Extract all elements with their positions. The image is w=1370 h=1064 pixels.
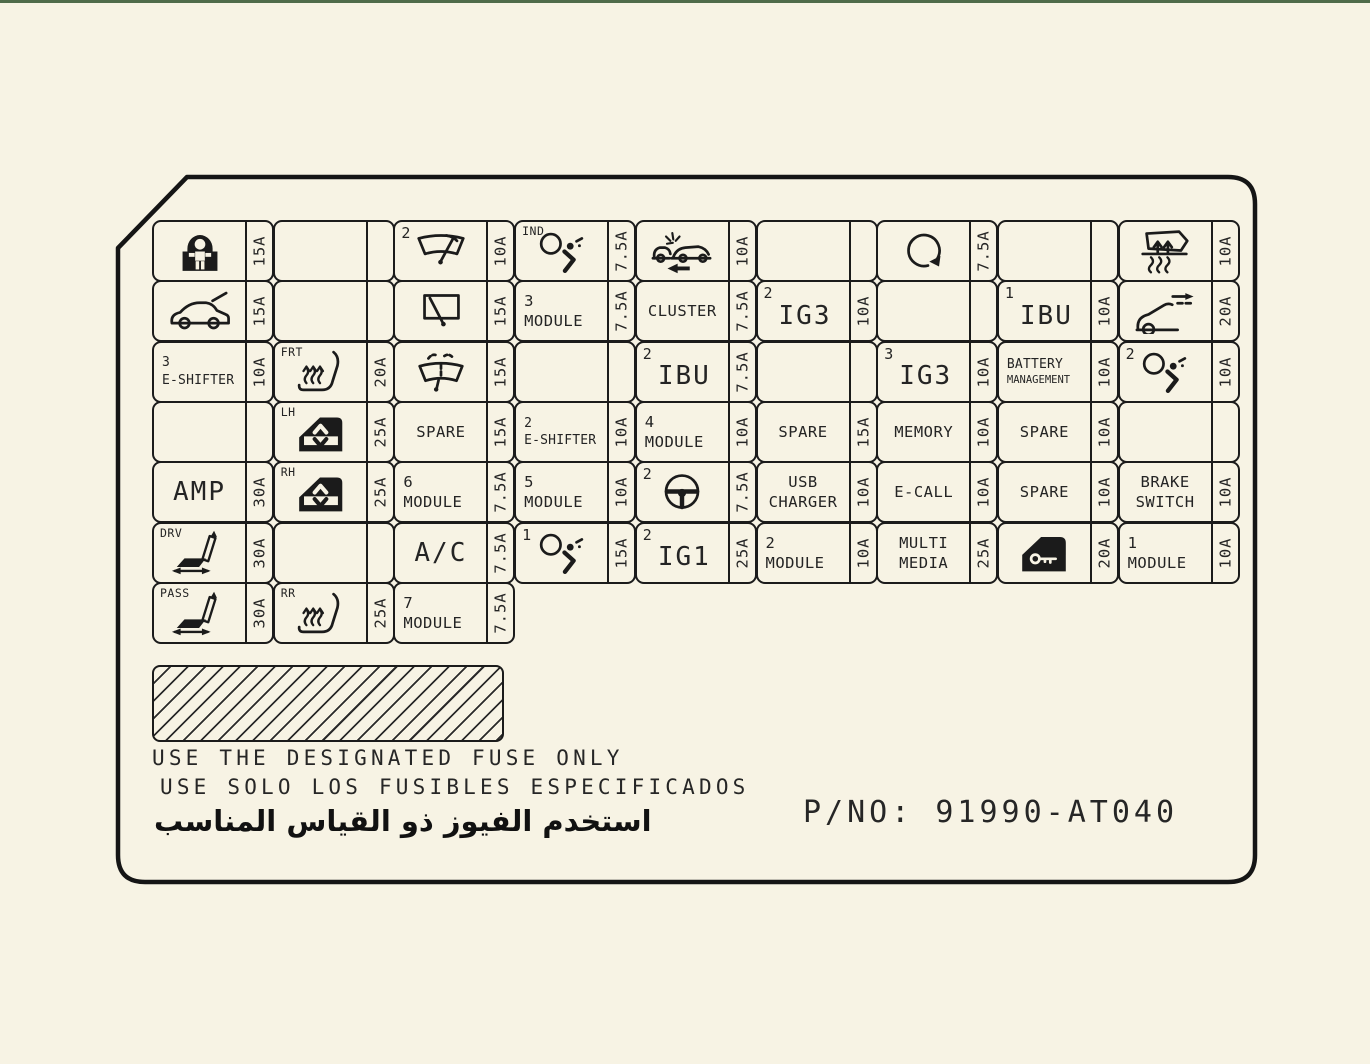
fuse-cell-label-area: 2IBU — [637, 343, 728, 401]
fuse-label-lines: 3E-SHIFTER — [154, 354, 245, 389]
fuse-cell-label-area: SPARE — [999, 463, 1090, 521]
fuse-cell-label-area — [516, 343, 607, 401]
fuse-cell-label-area: BATTERYMANAGEMENT — [999, 343, 1090, 401]
fuse-amp-rating: 10A — [969, 463, 996, 521]
fuse-cell-child-seat: 15A — [152, 220, 274, 282]
fuse-label-line: MEMORY — [894, 422, 953, 442]
fuse-label-line: IG3 — [779, 301, 832, 331]
fuse-amp-text: 10A — [1095, 417, 1113, 448]
fuse-amp-text: 30A — [251, 537, 269, 568]
fuse-label-line: 4 — [645, 412, 655, 432]
fuse-amp-rating: 20A — [1211, 282, 1238, 340]
fuse-amp-rating: 25A — [366, 463, 393, 521]
fuse-label-line: SPARE — [778, 422, 827, 442]
fuse-amp-text: 15A — [854, 417, 872, 448]
fuse-cell-collision: 10A — [635, 220, 757, 282]
fuse-cell-e-shifter-3: 3E-SHIFTER10A — [152, 341, 274, 403]
fuse-cell-label-area — [275, 524, 366, 582]
fuse-amp-text: 10A — [1095, 477, 1113, 508]
fuse-amp-text: 10A — [613, 477, 631, 508]
fuse-amp-rating: 15A — [607, 524, 634, 582]
fuse-label-line: 2 — [766, 533, 776, 553]
fuse-amp-rating — [1211, 403, 1238, 461]
fuse-amp-text: 15A — [492, 417, 510, 448]
fuse-cell-memory: MEMORY10A — [876, 401, 998, 463]
fuse-cell-label-area: 2 — [1120, 343, 1211, 401]
fuse-label-lines: USBCHARGER — [758, 472, 849, 512]
fuse-cell-label-area: SPARE — [999, 403, 1090, 461]
fuse-label-lines: 3MODULE — [516, 291, 607, 331]
fuse-amp-rating: 30A — [245, 524, 272, 582]
hatched-legend-box — [152, 665, 504, 742]
fuse-label-lines: 1MODULE — [1120, 533, 1211, 573]
fuse-cell-ac: A/C7.5A — [393, 522, 515, 584]
fuse-label-lines: AMP — [154, 477, 245, 507]
fuse-amp-rating: 10A — [849, 524, 876, 582]
fuse-cell-module-7: 7MODULE7.5A — [393, 582, 515, 644]
fuse-label-lines: MULTIMEDIA — [878, 533, 969, 573]
fuse-prefix-label: 2 — [764, 284, 774, 302]
child-seat-icon — [169, 229, 231, 274]
fuse-cell-usb-charger: USBCHARGER10A — [756, 461, 878, 523]
fuse-cell-window-rh: RH 25A — [273, 461, 395, 523]
fuse-label-lines: SPARE — [395, 422, 486, 442]
fuse-amp-text: 30A — [251, 477, 269, 508]
fuse-amp-text: 10A — [1216, 356, 1234, 387]
fuse-amp-rating: 20A — [1090, 524, 1117, 582]
fuse-cell-label-area: E-CALL — [878, 463, 969, 521]
fuse-amp-text: 10A — [1095, 296, 1113, 327]
fuse-amp-rating: 10A — [1090, 403, 1117, 461]
fuse-cell-spare-1: SPARE15A — [393, 401, 515, 463]
fuse-cell-heated-seat-front: FRT 20A — [273, 341, 395, 403]
fuse-cell-spare-3: SPARE10A — [997, 401, 1119, 463]
fuse-label-line: 5 — [524, 472, 534, 492]
fuse-label-line: MEDIA — [899, 553, 948, 573]
fuse-prefix-label: 1 — [1005, 284, 1015, 302]
fuse-amp-rating: 10A — [1090, 282, 1117, 340]
fuse-prefix-label: 3 — [884, 345, 894, 363]
fuse-cell-power-seat-passenger: PASS 30A — [152, 582, 274, 644]
fuse-cell-module-5: 5MODULE10A — [514, 461, 636, 523]
fuse-cell-label-area — [395, 343, 486, 401]
fuse-cell-power-seat-driver: DRV 30A — [152, 522, 274, 584]
fuse-label-lines: BATTERYMANAGEMENT — [999, 356, 1090, 388]
fuse-cell-label-area: RH — [275, 463, 366, 521]
fuse-amp-rating: 7.5A — [607, 282, 634, 340]
fuse-prefix-label: RR — [281, 586, 296, 600]
fuse-amp-rating: 10A — [969, 343, 996, 401]
fuse-cell-label-area: 2 — [637, 463, 728, 521]
fuse-amp-rating: 10A — [1211, 222, 1238, 280]
fuse-label-lines: 7MODULE — [395, 593, 486, 633]
fuse-amp-rating — [969, 282, 996, 340]
fuse-amp-rating: 10A — [1211, 343, 1238, 401]
fuse-amp-text: 25A — [975, 537, 993, 568]
fuse-label-line: SPARE — [1020, 482, 1069, 502]
fuse-amp-rating — [366, 222, 393, 280]
fuse-label-lines: 2E-SHIFTER — [516, 415, 607, 450]
fuse-amp-rating: 7.5A — [486, 584, 513, 642]
fuse-prefix-label: DRV — [160, 526, 182, 540]
fuse-cell-empty — [756, 220, 878, 282]
fuse-amp-text: 15A — [613, 537, 631, 568]
fuse-cell-window-lh: LH 25A — [273, 401, 395, 463]
fuse-cell-empty — [152, 401, 274, 463]
fuse-amp-rating: 7.5A — [969, 222, 996, 280]
fuse-cell-module-1: 1MODULE10A — [1118, 522, 1240, 584]
fuse-cell-label-area: USBCHARGER — [758, 463, 849, 521]
fuse-cell-label-area: 1IBU — [999, 282, 1090, 340]
fuse-label-lines: SPARE — [999, 422, 1090, 442]
fuse-amp-rating: 10A — [607, 403, 634, 461]
fuse-cell-label-area — [154, 403, 245, 461]
fuse-label-line: MODULE — [524, 492, 583, 512]
fuse-label-line: SWITCH — [1136, 492, 1195, 512]
fuse-cell-label-area — [999, 222, 1090, 280]
fuse-amp-rating — [366, 524, 393, 582]
fuse-label-lines: 5MODULE — [516, 472, 607, 512]
fuse-cell-label-area: IND — [516, 222, 607, 280]
fuse-label-line: SPARE — [416, 422, 465, 442]
fuse-cell-e-shifter-2: 2E-SHIFTER10A — [514, 401, 636, 463]
fuse-label-lines: BRAKESWITCH — [1120, 472, 1211, 512]
fuse-amp-text: 25A — [371, 417, 389, 448]
fuse-label-line: IBU — [1020, 301, 1073, 331]
fuse-cell-heated-mirror: 10A — [1118, 220, 1240, 282]
fuse-amp-rating — [245, 403, 272, 461]
fuse-prefix-label: 2 — [643, 345, 653, 363]
fuse-prefix-label: LH — [281, 405, 296, 419]
fuse-amp-rating: 7.5A — [486, 463, 513, 521]
fuse-amp-text: 7.5A — [733, 291, 751, 332]
fuse-cell-label-area: A/C — [395, 524, 486, 582]
fuse-amp-rating: 10A — [486, 222, 513, 280]
fuse-prefix-label: RH — [281, 465, 296, 479]
fuse-amp-rating: 7.5A — [607, 222, 634, 280]
fuse-amp-rating: 25A — [969, 524, 996, 582]
fuse-amp-text: 10A — [1216, 477, 1234, 508]
fuse-amp-rating: 10A — [728, 222, 755, 280]
fuse-cell-label-area — [1120, 403, 1211, 461]
fuse-prefix-label: 2 — [401, 224, 411, 242]
fuse-amp-rating: 7.5A — [728, 282, 755, 340]
fuse-amp-text: 7.5A — [613, 230, 631, 271]
fuse-amp-text: 10A — [854, 477, 872, 508]
fuse-prefix-label: 2 — [643, 526, 653, 544]
fuse-cell-empty — [514, 341, 636, 403]
fuse-cell-label-area: 2MODULE — [758, 524, 849, 582]
fuse-label-line: AMP — [173, 477, 226, 507]
fuse-cell-label-area: 7MODULE — [395, 584, 486, 642]
fuse-label-line: BRAKE — [1141, 472, 1190, 492]
fuse-cell-label-area: 1MODULE — [1120, 524, 1211, 582]
fuse-cell-label-area — [878, 282, 969, 340]
fuse-cell-rear-wiper: 15A — [393, 280, 515, 342]
fuse-amp-text: 10A — [492, 236, 510, 267]
fuse-cell-label-area: DRV — [154, 524, 245, 582]
fuse-amp-rating: 7.5A — [486, 524, 513, 582]
fuse-amp-text: 10A — [613, 417, 631, 448]
fuse-label-lines: SPARE — [758, 422, 849, 442]
fuse-cell-label-area: 3IG3 — [878, 343, 969, 401]
fuse-label-line: MANAGEMENT — [1007, 373, 1070, 387]
fuse-amp-rating: 10A — [969, 403, 996, 461]
notice-arabic: استخدم الفيوز ذو القياس المناسب — [154, 804, 652, 838]
fuse-amp-rating: 10A — [1211, 524, 1238, 582]
fuse-cell-heated-seat-rear: RR 25A — [273, 582, 395, 644]
fuse-amp-rating: 10A — [728, 403, 755, 461]
fuse-cell-label-area: 4MODULE — [637, 403, 728, 461]
fuse-cell-amp: AMP30A — [152, 461, 274, 523]
fuse-label-line: IG1 — [658, 542, 711, 572]
fuse-label-line: MODULE — [524, 311, 583, 331]
fuse-amp-rating: 10A — [849, 282, 876, 340]
fuse-prefix-label: 1 — [522, 526, 532, 544]
fuse-cell-label-area: 6MODULE — [395, 463, 486, 521]
fuse-amp-text: 20A — [1095, 537, 1113, 568]
fuse-prefix-label: 2 — [1126, 345, 1136, 363]
fuse-label-line: MODULE — [403, 492, 462, 512]
fuse-amp-rating: 10A — [1211, 463, 1238, 521]
fuse-cell-label-area: LH — [275, 403, 366, 461]
fuse-cell-module-3: 3MODULE7.5A — [514, 280, 636, 342]
fuse-label-line: 3 — [524, 291, 534, 311]
fuse-cell-label-area — [275, 222, 366, 280]
fuse-amp-rating: 15A — [849, 403, 876, 461]
crash-car-icon — [651, 229, 713, 274]
fuse-cell-empty — [756, 341, 878, 403]
fuse-cell-module-6: 6MODULE7.5A — [393, 461, 515, 523]
fuse-cell-tailgate: 15A — [152, 280, 274, 342]
fuse-cell-battery-management: BATTERYMANAGEMENT10A — [997, 341, 1119, 403]
fuse-amp-rating: 15A — [245, 282, 272, 340]
fuse-label-line: E-SHIFTER — [162, 372, 234, 390]
fuse-amp-rating: 25A — [366, 403, 393, 461]
window-icon — [289, 410, 351, 455]
fuse-cell-label-area: SPARE — [758, 403, 849, 461]
fuse-label-line: MULTI — [899, 533, 948, 553]
fuse-cell-empty — [1118, 401, 1240, 463]
fuse-prefix-label: FRT — [281, 345, 303, 359]
fuse-amp-rating: 20A — [366, 343, 393, 401]
fuse-cell-label-area — [758, 343, 849, 401]
fuse-label-line: E-SHIFTER — [524, 432, 596, 450]
fuse-cell-label-area — [878, 222, 969, 280]
fuse-amp-text: 7.5A — [733, 351, 751, 392]
fuse-amp-text: 7.5A — [492, 592, 510, 633]
fuse-amp-text: 25A — [371, 598, 389, 629]
fuse-amp-rating: 10A — [245, 343, 272, 401]
door-key-icon — [1013, 530, 1075, 575]
fuse-amp-text: 15A — [492, 356, 510, 387]
fuse-cell-label-area: PASS — [154, 584, 245, 642]
fuse-cell-label-area — [154, 282, 245, 340]
fuse-label-lines: 4MODULE — [637, 412, 728, 452]
fuse-cell-label-area: 3MODULE — [516, 282, 607, 340]
fuse-cell-ibu-2: 2IBU7.5A — [635, 341, 757, 403]
fuse-cell-empty — [997, 220, 1119, 282]
fuse-amp-text: 10A — [1216, 537, 1234, 568]
fuse-amp-rating: 15A — [486, 403, 513, 461]
part-number: P/NO: 91990-AT040 — [803, 795, 1178, 830]
fuse-label-line: BATTERY — [1007, 356, 1063, 374]
fuse-cell-ig3-3: 3IG310A — [876, 341, 998, 403]
fuse-cell-label-area: MULTIMEDIA — [878, 524, 969, 582]
fuse-cell-airbag-indicator: IND 7.5A — [514, 220, 636, 282]
fuse-amp-text: 7.5A — [492, 472, 510, 513]
fuse-label-line: USB — [788, 472, 818, 492]
fuse-cell-power-trunk: 20A — [1118, 280, 1240, 342]
fuse-cell-label-area — [275, 282, 366, 340]
fuse-cell-empty — [273, 522, 395, 584]
fuse-cell-label-area: 2IG3 — [758, 282, 849, 340]
fuse-cell-label-area — [395, 282, 486, 340]
fuse-cell-label-area: 1 — [516, 524, 607, 582]
fuse-cell-heated-steering: 7.5A — [876, 220, 998, 282]
fuse-amp-text: 25A — [733, 537, 751, 568]
fuse-amp-rating — [607, 343, 634, 401]
notice-english: USE THE DESIGNATED FUSE ONLY — [152, 746, 624, 770]
fuse-amp-text: 7.5A — [975, 230, 993, 271]
fuse-amp-text: 7.5A — [733, 472, 751, 513]
fuse-amp-text: 7.5A — [492, 532, 510, 573]
fuse-amp-rating: 25A — [728, 524, 755, 582]
fuse-cell-empty — [273, 280, 395, 342]
fuse-cell-module-4: 4MODULE10A — [635, 401, 757, 463]
fuse-amp-text: 10A — [975, 356, 993, 387]
fuse-cell-module-2: 2MODULE10A — [756, 522, 878, 584]
fuse-cell-label-area: CLUSTER — [637, 282, 728, 340]
fuse-amp-rating: 10A — [607, 463, 634, 521]
power-trunk-icon — [1134, 289, 1196, 334]
fuse-amp-text: 25A — [371, 477, 389, 508]
fuse-cell-label-area: BRAKESWITCH — [1120, 463, 1211, 521]
fuse-cell-label-area: MEMORY — [878, 403, 969, 461]
fuse-amp-text: 20A — [371, 356, 389, 387]
fuse-prefix-label: 2 — [643, 465, 653, 483]
fuse-label-lines: SPARE — [999, 482, 1090, 502]
fuse-amp-text: 30A — [251, 598, 269, 629]
fuse-label-line: 3 — [162, 354, 170, 372]
tailgate-icon — [169, 289, 231, 334]
fuse-amp-text: 7.5A — [613, 291, 631, 332]
fuse-amp-rating: 15A — [245, 222, 272, 280]
rear-wiper-icon — [410, 289, 472, 334]
fuse-cell-label-area: 2 — [395, 222, 486, 280]
fuse-cell-label-area: 3E-SHIFTER — [154, 343, 245, 401]
fuse-amp-rating: 10A — [1090, 343, 1117, 401]
fuse-cell-label-area — [637, 222, 728, 280]
fuse-amp-text: 10A — [975, 417, 993, 448]
fuse-label-lines: MEMORY — [878, 422, 969, 442]
fuse-cell-label-area — [999, 524, 1090, 582]
fuse-label-line: IG3 — [899, 361, 952, 391]
fuse-amp-rating — [849, 343, 876, 401]
fuse-amp-text: 10A — [1095, 356, 1113, 387]
fuse-label-line: MODULE — [403, 613, 462, 633]
fuse-cell-ig1-2: 2IG125A — [635, 522, 757, 584]
fuse-amp-text: 10A — [251, 356, 269, 387]
fuse-amp-text: 20A — [1216, 296, 1234, 327]
fuse-cell-door-lock: 20A — [997, 522, 1119, 584]
fuse-cell-empty — [273, 220, 395, 282]
front-wiper-icon — [410, 229, 472, 274]
fuse-amp-rating: 10A — [849, 463, 876, 521]
fuse-label-line: 1 — [1128, 533, 1138, 553]
fuse-cell-label-area — [154, 222, 245, 280]
fuse-prefix-label: IND — [522, 224, 544, 238]
fuse-cell-cluster: CLUSTER7.5A — [635, 280, 757, 342]
fuse-cell-ig3-2: 2IG310A — [756, 280, 878, 342]
fuse-cell-label-area: 2E-SHIFTER — [516, 403, 607, 461]
fuse-amp-rating: 25A — [366, 584, 393, 642]
fuse-label-line: IBU — [658, 361, 711, 391]
fuse-amp-rating: 15A — [486, 282, 513, 340]
fuse-cell-label-area — [758, 222, 849, 280]
fuse-cell-spare-4: SPARE10A — [997, 461, 1119, 523]
fuse-cell-label-area: 2IG1 — [637, 524, 728, 582]
heated-seat-icon — [289, 591, 351, 636]
airbag-icon — [531, 530, 593, 575]
fuse-cell-airbag-2: 2 10A — [1118, 341, 1240, 403]
fuse-amp-text: 10A — [1216, 236, 1234, 267]
fuse-label-lines: E-CALL — [878, 482, 969, 502]
fuse-label-line: MODULE — [1128, 553, 1187, 573]
fuse-label-line: CLUSTER — [648, 301, 717, 321]
fuse-label-line: A/C — [414, 538, 467, 568]
steering-wheel-icon — [651, 470, 713, 515]
fuse-prefix-label: PASS — [160, 586, 190, 600]
fuse-amp-rating: 30A — [245, 463, 272, 521]
fuse-amp-rating: 15A — [486, 343, 513, 401]
fuse-label-lines: 6MODULE — [395, 472, 486, 512]
fuse-cell-airbag-1: 1 15A — [514, 522, 636, 584]
fuse-label-lines: A/C — [395, 538, 486, 568]
heated-steering-icon — [893, 229, 955, 274]
heated-mirror-icon — [1134, 229, 1196, 274]
fuse-label-lines: 2MODULE — [758, 533, 849, 573]
fuse-cell-empty — [876, 280, 998, 342]
fuse-cell-ibu-1: 1IBU10A — [997, 280, 1119, 342]
fuse-cell-spare-2: SPARE15A — [756, 401, 878, 463]
fuse-cell-label-area: RR — [275, 584, 366, 642]
fuse-amp-rating — [366, 282, 393, 340]
fuse-amp-text: 15A — [251, 296, 269, 327]
fuse-label-line: CHARGER — [769, 492, 838, 512]
fuse-cell-label-area — [1120, 222, 1211, 280]
fuse-label-lines: CLUSTER — [637, 301, 728, 321]
fuse-cell-brake-switch: BRAKESWITCH10A — [1118, 461, 1240, 523]
notice-spanish: USE SOLO LOS FUSIBLES ESPECIFICADOS — [160, 775, 750, 799]
fuse-cell-label-area: SPARE — [395, 403, 486, 461]
fuse-cell-washer: 15A — [393, 341, 515, 403]
fuse-amp-text: 10A — [733, 417, 751, 448]
fuse-amp-text: 10A — [854, 537, 872, 568]
fuse-label-line: E-CALL — [894, 482, 953, 502]
fuse-amp-rating: 30A — [245, 584, 272, 642]
fuse-box-diagram: 15A2 10AIND 7.5A 10A 7.5A 10A 15A 15A3MO… — [0, 0, 1370, 1064]
fuse-cell-label-area: 5MODULE — [516, 463, 607, 521]
washer-icon — [410, 349, 472, 394]
fuse-label-line: MODULE — [766, 553, 825, 573]
fuse-amp-rating: 7.5A — [728, 463, 755, 521]
fuse-amp-text: 10A — [733, 236, 751, 267]
window-icon — [289, 470, 351, 515]
fuse-amp-text: 10A — [854, 296, 872, 327]
fuse-label-line: 7 — [403, 593, 413, 613]
airbag-icon — [1134, 349, 1196, 394]
